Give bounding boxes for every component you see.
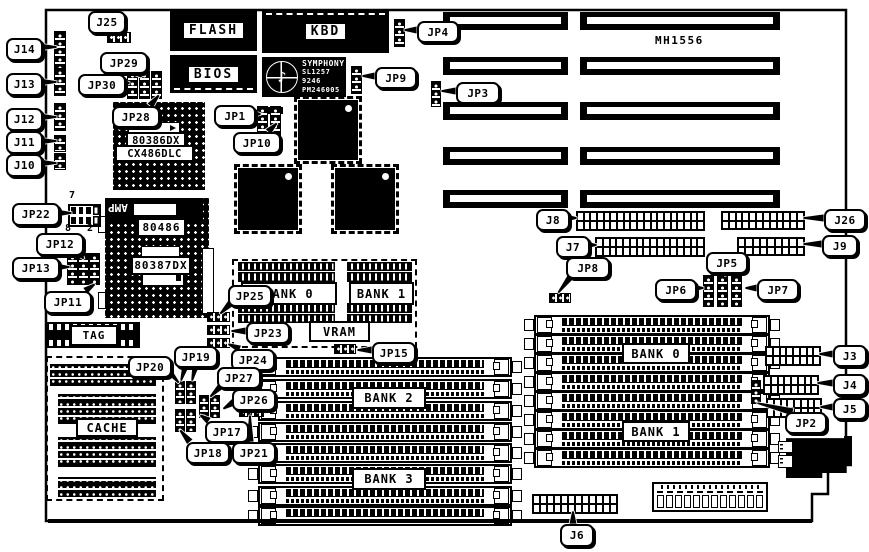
- simm-tab: [524, 319, 534, 331]
- isa-slot: [443, 102, 568, 120]
- header-pin: [631, 239, 636, 246]
- simm-contacts: [562, 442, 742, 446]
- header-pin: [765, 386, 770, 393]
- header-pin: [611, 248, 616, 255]
- callout-label: JP20: [136, 361, 165, 374]
- header-pin: [794, 357, 799, 364]
- chip-text-line: SL1257: [302, 68, 345, 77]
- pin1-dot-icon: [285, 173, 292, 180]
- header-pin: [569, 505, 574, 512]
- header-pin: [764, 213, 769, 220]
- callout-jp27: JP27: [217, 367, 261, 389]
- header-pin: [764, 222, 769, 229]
- pin1-dot-icon: [345, 105, 352, 112]
- vram-dip-row: [347, 272, 412, 282]
- callout-tail: [819, 350, 833, 358]
- callout-label: JP15: [380, 347, 409, 360]
- callout-jp21: JP21: [232, 442, 276, 464]
- header-pin: [754, 248, 759, 255]
- header-pin: [604, 239, 609, 246]
- jp19-jumper-b: [187, 382, 195, 403]
- header-pin: [776, 239, 781, 246]
- simm-contacts: [562, 413, 742, 421]
- callout-jp2: JP2: [785, 412, 827, 434]
- header-pin: [692, 239, 697, 246]
- header-pin: [665, 213, 670, 220]
- vram-bank1-label: BANK 1: [349, 282, 414, 305]
- isa-slot: [443, 147, 568, 165]
- j11-header: [55, 136, 65, 151]
- header-pin: [576, 505, 581, 512]
- header-pin: [678, 213, 683, 220]
- power-pin: [693, 495, 700, 508]
- cache-label: CACHE: [76, 418, 138, 437]
- isa-slot: [443, 12, 568, 30]
- callout-j7: J7: [556, 236, 590, 258]
- jp18-jumper-b: [187, 410, 195, 431]
- header-pin: [692, 222, 697, 229]
- callout-label: J13: [14, 78, 35, 91]
- simm-tab: [524, 357, 534, 369]
- callout-tail: [441, 87, 456, 95]
- jp25-jumper: [208, 313, 229, 321]
- header-pin: [795, 400, 800, 407]
- j3-header: [765, 346, 821, 366]
- keyboard-plug-2: [778, 455, 793, 468]
- simm-tab: [524, 395, 534, 407]
- simm-socket: [258, 443, 512, 463]
- simm-contacts: [286, 499, 484, 503]
- j10-header: [55, 154, 65, 169]
- simm-latch-left: [537, 374, 552, 390]
- simm-tab: [512, 426, 522, 438]
- header-pin: [672, 213, 677, 220]
- header-pin: [798, 239, 803, 246]
- header-pin: [743, 222, 748, 229]
- power-pin: [738, 495, 745, 508]
- jp17-jumper-b: [211, 396, 219, 417]
- chip-label: BIOS: [187, 65, 240, 84]
- simm-socket: [534, 448, 770, 468]
- header-pin: [730, 222, 735, 229]
- callout-label: J7: [566, 241, 580, 254]
- header-pin: [604, 505, 609, 512]
- simm-tab: [524, 433, 534, 445]
- header-pin: [799, 377, 804, 384]
- vram-label: VRAM: [309, 321, 370, 342]
- music-note-icon: ♪: [277, 68, 286, 86]
- header-pin: [611, 213, 616, 220]
- header-pin: [757, 213, 762, 220]
- callout-jp15: JP15: [372, 342, 416, 364]
- jp30-jumper: [152, 72, 161, 98]
- power-pin: [675, 495, 682, 508]
- simm-contacts: [286, 509, 484, 517]
- callout-jp11: JP11: [44, 291, 92, 314]
- callout-label: J3: [843, 350, 857, 363]
- header-pin: [597, 505, 602, 512]
- jp8-jumper: [550, 294, 570, 302]
- simm-contacts: [562, 385, 742, 389]
- jp13-jumper: [68, 254, 77, 284]
- qfp-chip-2: [238, 168, 298, 230]
- isa-slot-opening: [587, 107, 773, 114]
- header-pin: [672, 222, 677, 229]
- power-pin: [666, 495, 673, 508]
- header-pin: [790, 239, 795, 246]
- socket-top-bar: AMP: [105, 198, 203, 220]
- jp1-jumper-a: [258, 107, 267, 133]
- header-pin: [534, 505, 539, 512]
- jumper-cell: [70, 206, 77, 215]
- header-pin: [772, 386, 777, 393]
- jp1-jumper-b: [271, 107, 280, 135]
- simm-contacts: [562, 318, 742, 326]
- header-pin: [692, 248, 697, 255]
- callout-j9: J9: [822, 235, 858, 257]
- jp12-jumper: [79, 254, 88, 284]
- simm-latch-right: [494, 445, 509, 461]
- header-pin: [591, 222, 596, 229]
- jp7-jumper: [732, 276, 741, 306]
- callout-tail: [362, 72, 375, 80]
- j25-jumper: [108, 33, 130, 42]
- header-pin: [631, 222, 636, 229]
- kbd-chip: KBD: [262, 10, 389, 53]
- simm-tab: [524, 376, 534, 388]
- simm-contacts: [286, 489, 484, 497]
- header-pin: [658, 239, 663, 246]
- simm-latch-left: [537, 317, 552, 333]
- simm-contacts: [562, 375, 742, 383]
- header-pin: [585, 213, 590, 220]
- header-pin: [784, 222, 789, 229]
- callout-j4: J4: [833, 374, 867, 396]
- jp11-jumper: [90, 254, 99, 284]
- callout-label: JP11: [54, 296, 83, 309]
- header-pin: [651, 248, 656, 255]
- header-pin: [685, 239, 690, 246]
- callout-jp29: JP29: [100, 52, 148, 74]
- callout-j11: J11: [6, 131, 43, 154]
- header-pin: [692, 213, 697, 220]
- header-pin: [743, 213, 748, 220]
- jp22-jumper-block: [68, 204, 101, 227]
- header-pin: [652, 213, 657, 220]
- header-pin: [618, 213, 623, 220]
- header-pin: [781, 357, 786, 364]
- header-pin: [631, 248, 636, 255]
- j6-header: [532, 494, 618, 514]
- callout-jp22: JP22: [12, 203, 60, 226]
- header-pin: [585, 222, 590, 229]
- header-pin: [644, 239, 649, 246]
- power-pin: [702, 495, 709, 508]
- header-pin: [761, 239, 766, 246]
- header-pin: [798, 222, 803, 229]
- callout-label: JP27: [225, 372, 254, 385]
- j26-header: [721, 211, 805, 230]
- simm-latch-right: [752, 317, 767, 333]
- simm-contacts: [562, 366, 742, 370]
- socket-clip: [98, 292, 106, 309]
- callout-label: J25: [96, 16, 117, 29]
- cache-dip-group: [58, 477, 156, 497]
- callout-tail: [745, 284, 757, 292]
- header-pin: [785, 377, 790, 384]
- isa-slot-opening: [587, 62, 773, 69]
- isa-slot-opening: [587, 17, 773, 24]
- callout-label: J10: [14, 159, 35, 172]
- callout-jp1: JP1: [214, 105, 256, 127]
- header-pin: [768, 248, 773, 255]
- header-pin: [625, 213, 630, 220]
- j4-header: [763, 375, 819, 395]
- isa-slot: [443, 190, 568, 208]
- callout-jp20: JP20: [128, 356, 172, 378]
- callout-label: J14: [14, 43, 35, 56]
- jp9-jumper: [352, 67, 361, 93]
- header-pin: [761, 248, 766, 255]
- isa-slot-opening: [587, 195, 773, 202]
- callout-label: J8: [546, 214, 560, 227]
- header-pin: [562, 505, 567, 512]
- cache-dip-group: [58, 437, 156, 467]
- isa-slot-opening: [450, 195, 561, 202]
- jp2-jumper: [752, 381, 760, 403]
- jumper-cell: [93, 206, 100, 215]
- jp4-jumper: [395, 20, 404, 46]
- header-pin: [590, 496, 595, 503]
- simm-contacts: [286, 446, 484, 454]
- header-pin: [757, 222, 762, 229]
- isa-slot: [580, 102, 780, 120]
- motherboard-diagram: FLASHBIOSKBD♪SYMPHONYSL12579246PM2460058…: [0, 0, 869, 552]
- symphony-chipset: ♪SYMPHONYSL12579246PM246005: [262, 57, 346, 97]
- arrow-icon: [170, 125, 176, 131]
- header-pin: [723, 213, 728, 220]
- power-pin: [711, 495, 718, 508]
- callout-jp10: JP10: [233, 132, 281, 154]
- callout-jp8: JP8: [566, 257, 610, 279]
- header-pin: [737, 213, 742, 220]
- header-pin: [779, 377, 784, 384]
- header-pin: [611, 496, 616, 503]
- isa-slot: [580, 57, 780, 75]
- chip-text-line: 9246: [302, 77, 345, 86]
- power-pin-ticks: [657, 485, 763, 489]
- callout-jp18: JP18: [186, 442, 230, 464]
- simm-latch-right: [494, 488, 509, 504]
- jp23-jumper: [208, 326, 229, 334]
- callout-label: JP4: [427, 26, 448, 39]
- callout-label: JP9: [385, 72, 406, 85]
- header-pin: [658, 222, 663, 229]
- header-pin: [791, 213, 796, 220]
- simm-contacts: [562, 328, 742, 332]
- jp19-jumper-a: [176, 382, 184, 403]
- header-pin: [778, 222, 783, 229]
- header-pin: [754, 239, 759, 246]
- callout-j6: J6: [560, 524, 594, 547]
- simm-tab: [512, 510, 522, 522]
- header-pin: [774, 357, 779, 364]
- power-pin: [720, 495, 727, 508]
- j9-header: [737, 237, 805, 256]
- chip-text: SYMPHONYSL12579246PM246005: [302, 59, 345, 95]
- simm-latch-left: [261, 424, 276, 440]
- callout-label: J12: [14, 113, 35, 126]
- simm-contacts: [286, 414, 484, 418]
- socket-side-slot: [202, 248, 214, 314]
- header-pin: [644, 248, 649, 255]
- header-pin: [784, 213, 789, 220]
- callout-label: JP22: [22, 208, 51, 221]
- jp5-jumper: [718, 276, 727, 306]
- chip-label: FLASH: [182, 21, 245, 40]
- power-dashed-line: [657, 491, 763, 493]
- j7-header: [595, 237, 705, 257]
- simm-socket: [534, 372, 770, 392]
- jp15-jumper: [335, 345, 355, 353]
- header-pin: [801, 348, 806, 355]
- header-pin: [767, 348, 772, 355]
- isa-slot: [580, 190, 780, 208]
- jp22-pin-2: 2: [87, 223, 95, 234]
- header-pin: [578, 222, 583, 229]
- bank0-label: BANK 0: [622, 343, 690, 364]
- board-model: MH1556: [655, 34, 704, 47]
- simm-tab: [770, 319, 780, 331]
- simm-tab: [248, 426, 258, 438]
- header-pin: [576, 496, 581, 503]
- flash-chip: FLASH: [170, 10, 257, 51]
- simm-tab: [512, 490, 522, 502]
- jp6-jumper: [704, 276, 713, 306]
- chip-text-line: SYMPHONY: [302, 59, 345, 68]
- callout-label: J9: [833, 240, 847, 253]
- simm-contacts: [286, 370, 484, 374]
- simm-contacts: [562, 451, 742, 459]
- power-pin: [657, 495, 664, 508]
- header-pin: [746, 239, 751, 246]
- header-pin: [604, 248, 609, 255]
- jp3-jumper: [432, 82, 440, 106]
- header-pin: [788, 400, 793, 407]
- header-pin: [698, 213, 703, 220]
- header-pin: [618, 222, 623, 229]
- simm-latch-right: [494, 466, 509, 482]
- callout-jp25: JP25: [228, 285, 272, 307]
- qfp-chip-3: [335, 168, 395, 230]
- header-pin: [809, 400, 814, 407]
- header-pin: [698, 222, 703, 229]
- callout-label: JP1: [224, 110, 245, 123]
- simm-tab: [512, 383, 522, 395]
- header-pin: [611, 222, 616, 229]
- jp29-jumper-b: [140, 72, 149, 98]
- header-pin: [671, 239, 676, 246]
- qfp-chip-1: [298, 100, 358, 160]
- jumper-cell: [85, 206, 92, 215]
- header-pin: [768, 400, 773, 407]
- simm-latch-left: [261, 488, 276, 504]
- header-pin: [812, 377, 817, 384]
- callout-jp4: JP4: [417, 21, 459, 43]
- header-pin: [665, 222, 670, 229]
- callout-label: JP24: [239, 354, 268, 367]
- simm-socket: [258, 422, 512, 442]
- header-pin: [808, 348, 813, 355]
- header-pin: [785, 386, 790, 393]
- callout-label: JP26: [240, 394, 269, 407]
- callout-label: JP8: [577, 262, 598, 275]
- header-pin: [605, 222, 610, 229]
- pin1-dot-icon: [382, 173, 389, 180]
- callout-tail: [803, 240, 822, 248]
- header-pin: [638, 213, 643, 220]
- header-pin: [638, 222, 643, 229]
- simm-latch-left: [537, 355, 552, 371]
- simm-latch-left: [537, 450, 552, 466]
- header-pin: [555, 496, 560, 503]
- header-pin: [787, 348, 792, 355]
- header-pin: [814, 357, 819, 364]
- cpu-label: 80486: [137, 218, 186, 237]
- socket-slot: [133, 203, 177, 216]
- header-pin: [685, 248, 690, 255]
- simm-socket: [534, 315, 770, 335]
- callout-jp19: JP19: [174, 346, 218, 368]
- header-pin: [750, 213, 755, 220]
- callout-label: JP23: [254, 327, 283, 340]
- header-pin: [569, 496, 574, 503]
- header-pin: [802, 400, 807, 407]
- simm-contacts: [562, 461, 742, 465]
- header-pin: [765, 377, 770, 384]
- header-pin: [671, 248, 676, 255]
- simm-latch-left: [537, 393, 552, 409]
- header-pin: [774, 348, 779, 355]
- header-pin: [778, 213, 783, 220]
- callout-j25: J25: [88, 11, 126, 34]
- callout-j13: J13: [6, 73, 43, 96]
- callout-jp23: JP23: [246, 322, 290, 344]
- header-pin: [779, 386, 784, 393]
- header-pin: [737, 222, 742, 229]
- header-pin: [548, 505, 553, 512]
- simm-contacts: [286, 519, 484, 523]
- callout-jp30: JP30: [78, 74, 126, 96]
- callout-j14: J14: [6, 38, 43, 61]
- j13-header: [55, 69, 65, 95]
- simm-contacts: [562, 404, 742, 408]
- chip-dashed-edge: [266, 13, 385, 15]
- header-pin: [665, 239, 670, 246]
- header-pin: [768, 239, 773, 246]
- bios-chip: BIOS: [170, 55, 257, 93]
- power-pin: [684, 495, 691, 508]
- bank1-label: BANK 1: [622, 421, 690, 442]
- socket-slot-key: [176, 275, 181, 281]
- keyboard-plug-1: [778, 441, 793, 453]
- callout-j26: J26: [824, 209, 866, 231]
- header-pin: [617, 239, 622, 246]
- header-pin: [597, 496, 602, 503]
- header-pin: [555, 505, 560, 512]
- header-pin: [768, 409, 773, 416]
- header-pin: [638, 239, 643, 246]
